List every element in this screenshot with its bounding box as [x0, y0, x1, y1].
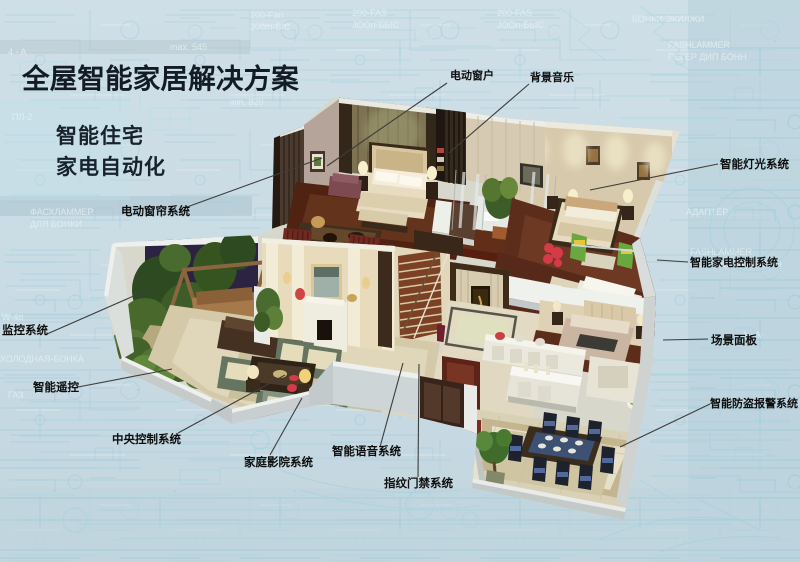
svg-text:200-FAS: 200-FAS: [497, 8, 532, 18]
svg-text:智能语音系统: 智能语音系统: [332, 444, 401, 458]
svg-text:智能防盗报警系统: 智能防盗报警系统: [710, 396, 798, 410]
svg-text:场景面板: 场景面板: [711, 333, 757, 347]
svg-text:家庭影院系统: 家庭影院系统: [244, 455, 313, 469]
svg-text:max. 545: max. 545: [170, 42, 207, 52]
svg-text:FASHLAMMER: FASHLAMMER: [690, 247, 753, 257]
svg-text:智能遥控: 智能遥控: [33, 380, 79, 394]
svg-text:指纹门禁系统: 指纹门禁系统: [384, 476, 453, 490]
svg-text:全屋智能家居解决方案: 全屋智能家居解决方案: [21, 63, 299, 94]
svg-text:中央控制系统: 中央控制系统: [112, 432, 181, 446]
svg-text:监控系统: 监控系统: [2, 323, 48, 337]
svg-text:JOOn-БЫС: JOOn-БЫС: [497, 20, 544, 30]
svg-text:РЕГЕР ДИП БОНН: РЕГЕР ДИП БОНН: [668, 52, 747, 62]
svg-text:JOOn-БЫС: JOOn-БЫС: [352, 20, 399, 30]
svg-text:电动窗帘系统: 电动窗帘系统: [121, 204, 190, 218]
svg-text:200m-Б/С: 200m-Б/С: [250, 22, 291, 32]
svg-text:家电自动化: 家电自动化: [56, 155, 166, 179]
svg-text:智能灯光系统: 智能灯光系统: [720, 157, 789, 171]
svg-text:200-Fan: 200-Fan: [250, 10, 284, 20]
svg-text:背景音乐: 背景音乐: [530, 70, 574, 84]
svg-text:БОНКИ ЭКИЛЖИ: БОНКИ ЭКИЛЖИ: [632, 14, 704, 24]
svg-text:ФАСХЛАММЕР: ФАСХЛАММЕР: [30, 207, 93, 217]
svg-text:АДАПТЕР: АДАПТЕР: [686, 207, 728, 217]
svg-text:win. 820: win. 820: [229, 97, 264, 107]
svg-text:智能家电控制系统: 智能家电控制系统: [690, 255, 778, 269]
svg-text:ХОЛОДНАЯ-БОНКА: ХОЛОДНАЯ-БОНКА: [0, 354, 84, 364]
svg-text:ПЛ-2: ПЛ-2: [12, 112, 32, 122]
svg-text:电动窗户: 电动窗户: [450, 68, 494, 82]
svg-text:ДЛЯ БОНКИ: ДЛЯ БОНКИ: [30, 219, 82, 229]
svg-text:4 - A: 4 - A: [8, 47, 27, 57]
svg-text:智能住宅: 智能住宅: [56, 124, 144, 148]
svg-text:ГАЗ: ГАЗ: [8, 390, 24, 400]
svg-text:200-FAS: 200-FAS: [352, 8, 387, 18]
